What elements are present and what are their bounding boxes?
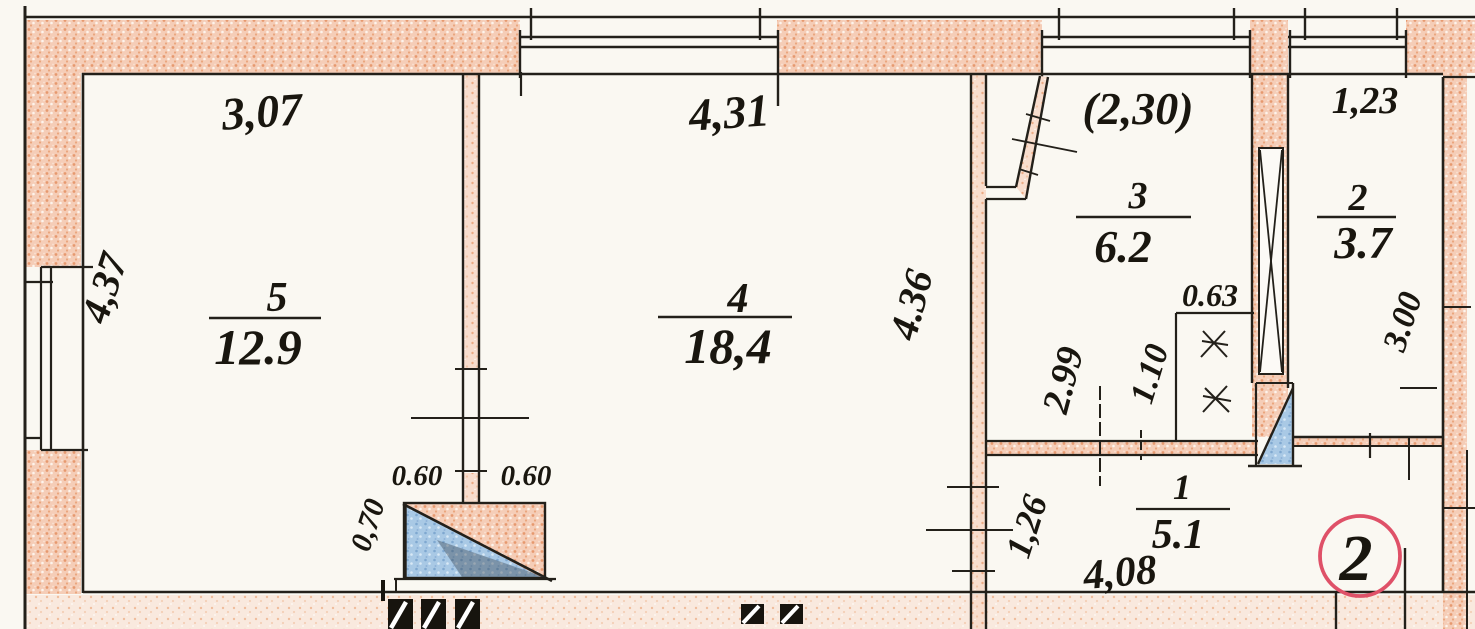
svg-text:(2,30): (2,30): [1082, 83, 1193, 134]
svg-text:4,08: 4,08: [1080, 547, 1158, 599]
svg-text:3,07: 3,07: [219, 83, 306, 140]
svg-text:5: 5: [267, 275, 288, 321]
svg-text:4: 4: [727, 276, 749, 322]
svg-text:0.63: 0.63: [1182, 277, 1238, 313]
svg-text:0.60: 0.60: [392, 460, 443, 492]
svg-text:5.1: 5.1: [1152, 512, 1205, 558]
svg-text:4,31: 4,31: [686, 84, 771, 141]
svg-text:18,4: 18,4: [684, 318, 772, 374]
svg-text:1: 1: [1173, 467, 1191, 507]
svg-text:1,23: 1,23: [1332, 80, 1399, 122]
svg-text:2: 2: [1339, 522, 1373, 595]
svg-text:2: 2: [1348, 177, 1368, 219]
svg-text:6.2: 6.2: [1094, 221, 1152, 272]
svg-text:12.9: 12.9: [214, 319, 302, 375]
svg-text:3.7: 3.7: [1333, 217, 1394, 268]
svg-text:3: 3: [1128, 175, 1148, 217]
svg-text:0.60: 0.60: [501, 460, 552, 492]
